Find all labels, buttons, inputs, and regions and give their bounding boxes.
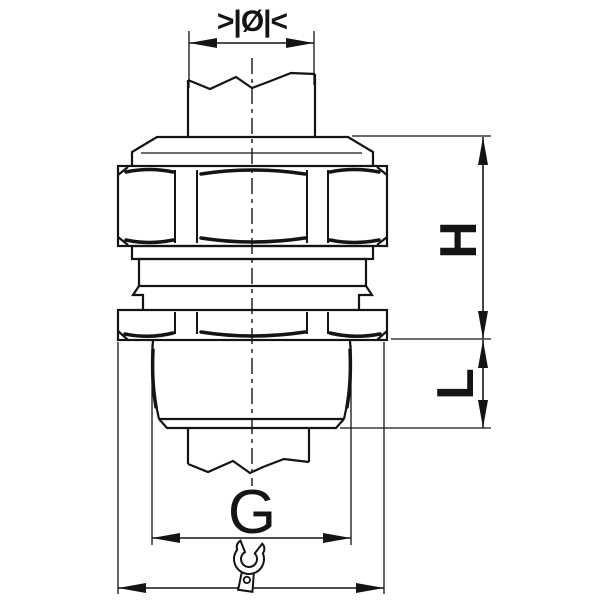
lower-hex-flange <box>118 310 387 340</box>
wrench-hole <box>243 576 250 583</box>
arrow-right-icon <box>323 533 351 543</box>
arrow-up-icon <box>478 137 488 165</box>
dim-wrench-width <box>118 342 384 594</box>
arrow-up-icon <box>478 340 488 368</box>
cable-bottom-sides <box>188 428 309 464</box>
arrow-left-icon <box>189 38 217 48</box>
wrench-icon <box>230 540 267 593</box>
arrow-left-icon <box>118 583 146 593</box>
arrow-right-icon <box>356 583 384 593</box>
arrow-right-icon <box>286 38 314 48</box>
cable-diameter-label: >|Ø|< <box>217 5 288 38</box>
dim-length-L: L <box>340 340 491 428</box>
arrow-left-icon <box>152 533 180 543</box>
upper-hex-chamfer-top <box>126 170 379 175</box>
technical-drawing-page: >|Ø|< H L G <box>0 0 600 600</box>
cable-bottom <box>188 428 309 473</box>
cable-bottom-break-line <box>188 459 309 473</box>
thread-body <box>152 340 350 428</box>
dim-cable-diameter: >|Ø|< <box>189 5 314 88</box>
arrow-down-icon <box>478 311 488 339</box>
arrow-down-icon <box>478 400 488 428</box>
length-label: L <box>427 368 485 400</box>
height-label: H <box>430 221 488 259</box>
thread-size-label: G <box>228 478 276 547</box>
dim-thread-G: G <box>152 345 351 547</box>
cable-gland-drawing: >|Ø|< H L G <box>0 0 600 600</box>
wrench-width-extension-lines <box>118 342 384 594</box>
